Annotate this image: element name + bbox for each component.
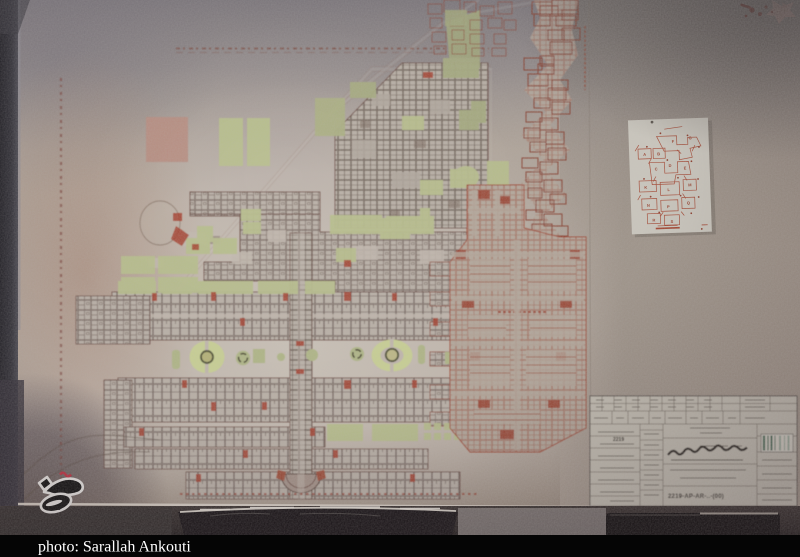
svg-text:photo: Sarallah Ankouti: photo: Sarallah Ankouti xyxy=(38,539,191,556)
